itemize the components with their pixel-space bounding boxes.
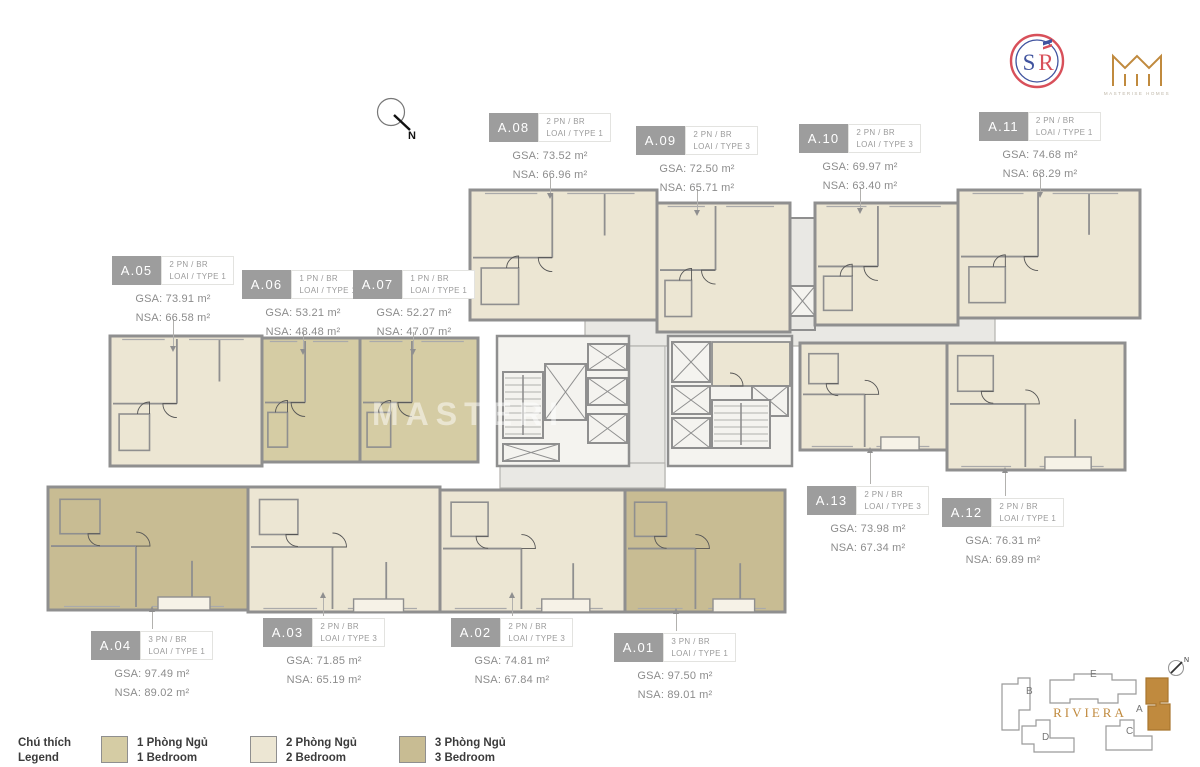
- unit-label-a07[interactable]: A.07 1 PN / BR LOAI / TYPE 1 GSA: 52.27 …: [329, 270, 499, 340]
- sr-logo: S R: [1011, 35, 1063, 87]
- unit-gsa: GSA: 52.27 m²: [376, 307, 451, 320]
- unit-id-badge[interactable]: A.02: [451, 618, 501, 647]
- unit-label-a10[interactable]: A.10 2 PN / BR LOAI / TYPE 3 GSA: 69.97 …: [775, 124, 945, 194]
- unit-nsa: NSA: 89.02 m²: [115, 687, 190, 700]
- unit-shape-a10[interactable]: [815, 203, 958, 325]
- unit-nsa: NSA: 67.84 m²: [475, 674, 550, 687]
- leader-line-a04: [152, 611, 153, 629]
- unit-nsa: NSA: 47.07 m²: [377, 326, 452, 339]
- unit-label-a01[interactable]: A.01 3 PN / BR LOAI / TYPE 1 GSA: 97.50 …: [590, 633, 760, 703]
- unit-id-badge[interactable]: A.11: [979, 112, 1028, 141]
- unit-label-a09[interactable]: A.09 2 PN / BR LOAI / TYPE 3 GSA: 72.50 …: [612, 126, 782, 196]
- unit-nsa: NSA: 68.29 m²: [1003, 168, 1078, 181]
- unit-shape-a02[interactable]: [440, 490, 625, 612]
- balcony: [354, 599, 404, 612]
- elevator-shaft: [672, 386, 710, 414]
- unit-gsa: GSA: 71.85 m²: [286, 655, 361, 668]
- svg-text:R: R: [1038, 50, 1054, 75]
- svg-text:N: N: [1184, 657, 1189, 664]
- svg-text:E: E: [1090, 669, 1097, 680]
- legend-swatch-1br: [101, 736, 128, 763]
- unit-nsa: NSA: 89.01 m²: [638, 689, 713, 702]
- unit-id-badge[interactable]: A.04: [91, 631, 141, 660]
- unit-label-a04[interactable]: A.04 3 PN / BR LOAI / TYPE 1 GSA: 97.49 …: [67, 631, 237, 701]
- legend: Chú thích Legend 1 Phòng Ngủ 1 Bedroom 2…: [18, 736, 548, 766]
- unit-shape-a09[interactable]: [657, 203, 790, 332]
- unit-label-a08[interactable]: A.08 2 PN / BR LOAI / TYPE 1 GSA: 73.52 …: [465, 113, 635, 183]
- leader-line-a12: [1005, 472, 1006, 496]
- svg-text:A: A: [1136, 704, 1143, 715]
- unit-nsa: NSA: 67.34 m²: [831, 542, 906, 555]
- leader-line-a03: [323, 597, 324, 616]
- legend-swatch-2br: [250, 736, 277, 763]
- elevator-shaft: [672, 418, 710, 448]
- minimap-project-name: RIVIERA: [1053, 705, 1127, 720]
- unit-type-box: 3 PN / BR LOAI / TYPE 1: [663, 633, 736, 662]
- unit-nsa: NSA: 66.58 m²: [136, 312, 211, 325]
- unit-shape-a13[interactable]: [800, 343, 947, 450]
- svg-text:S: S: [1023, 50, 1036, 75]
- staircase: [712, 400, 770, 448]
- watermark-text: MASTERI: [372, 396, 565, 432]
- unit-nsa: NSA: 65.71 m²: [660, 182, 735, 195]
- balcony: [542, 599, 590, 612]
- unit-gsa: GSA: 97.49 m²: [114, 668, 189, 681]
- legend-item-2br: 2 Phòng Ngủ 2 Bedroom: [250, 736, 357, 766]
- minimap: B E A D C RIVIERA N: [1002, 657, 1189, 752]
- unit-shape-a04[interactable]: [48, 487, 248, 610]
- unit-id-badge[interactable]: A.10: [799, 124, 849, 153]
- unit-gsa: GSA: 72.50 m²: [659, 163, 734, 176]
- elevator-shaft: [588, 414, 627, 443]
- unit-gsa: GSA: 74.81 m²: [474, 655, 549, 668]
- unit-type-box: 2 PN / BR LOAI / TYPE 3: [848, 124, 921, 153]
- legend-item-1br: 1 Phòng Ngủ 1 Bedroom: [101, 736, 208, 766]
- unit-gsa: GSA: 76.31 m²: [965, 535, 1040, 548]
- unit-label-a02[interactable]: A.02 2 PN / BR LOAI / TYPE 3 GSA: 74.81 …: [427, 618, 597, 688]
- unit-gsa: GSA: 69.97 m²: [822, 161, 897, 174]
- unit-type-box: 2 PN / BR LOAI / TYPE 3: [500, 618, 573, 647]
- unit-shape-a01[interactable]: [625, 490, 785, 612]
- unit-type-box: 2 PN / BR LOAI / TYPE 1: [1028, 112, 1101, 141]
- unit-gsa: GSA: 73.52 m²: [512, 150, 587, 163]
- unit-type-box: 2 PN / BR LOAI / TYPE 3: [312, 618, 385, 647]
- balcony: [713, 599, 755, 612]
- unit-gsa: GSA: 74.68 m²: [1002, 149, 1077, 162]
- unit-shape-a12[interactable]: [947, 343, 1125, 470]
- unit-gsa: GSA: 97.50 m²: [637, 670, 712, 683]
- unit-id-badge[interactable]: A.07: [353, 270, 403, 299]
- balcony: [1045, 457, 1091, 470]
- unit-type-box: 2 PN / BR LOAI / TYPE 1: [538, 113, 611, 142]
- legend-swatch-3br: [399, 736, 426, 763]
- unit-id-badge[interactable]: A.09: [636, 126, 686, 155]
- unit-label-a03[interactable]: A.03 2 PN / BR LOAI / TYPE 3 GSA: 71.85 …: [239, 618, 409, 688]
- unit-gsa: GSA: 73.98 m²: [830, 523, 905, 536]
- svg-text:D: D: [1042, 732, 1049, 743]
- unit-id-badge[interactable]: A.05: [112, 256, 162, 285]
- unit-id-badge[interactable]: A.03: [263, 618, 313, 647]
- elevator-shaft: [790, 286, 815, 316]
- leader-line-a01: [676, 613, 677, 631]
- svg-text:B: B: [1026, 686, 1033, 697]
- north-compass: N: [378, 99, 417, 143]
- unit-id-badge[interactable]: A.08: [489, 113, 539, 142]
- svg-text:C: C: [1126, 726, 1133, 737]
- leader-line-a02: [512, 597, 513, 616]
- unit-id-badge[interactable]: A.06: [242, 270, 292, 299]
- unit-nsa: NSA: 63.40 m²: [823, 180, 898, 193]
- minimap-building-a-highlighted[interactable]: [1146, 678, 1170, 730]
- masterise-logo: MASTERISE HOMES: [1104, 56, 1170, 96]
- balcony: [158, 597, 210, 610]
- legend-title: Chú thích Legend: [18, 736, 71, 766]
- unit-shape-a11[interactable]: [958, 190, 1140, 318]
- leader-line-a13: [870, 452, 871, 484]
- unit-gsa: GSA: 73.91 m²: [135, 293, 210, 306]
- unit-label-a12[interactable]: A.12 2 PN / BR LOAI / TYPE 1 GSA: 76.31 …: [918, 498, 1088, 568]
- svg-text:MASTERISE HOMES: MASTERISE HOMES: [1104, 91, 1170, 96]
- unit-nsa: NSA: 69.89 m²: [966, 554, 1041, 567]
- unit-id-badge[interactable]: A.13: [807, 486, 857, 515]
- legend-item-3br: 3 Phòng Ngủ 3 Bedroom: [399, 736, 506, 766]
- unit-type-box: 2 PN / BR LOAI / TYPE 1: [991, 498, 1064, 527]
- unit-type-box: 2 PN / BR LOAI / TYPE 3: [685, 126, 758, 155]
- unit-type-box: 1 PN / BR LOAI / TYPE 1: [402, 270, 475, 299]
- unit-id-badge[interactable]: A.01: [614, 633, 664, 662]
- svg-text:N: N: [408, 130, 416, 142]
- elevator-shaft: [588, 378, 627, 405]
- unit-shape-a06[interactable]: [262, 338, 360, 462]
- unit-shape-a03[interactable]: [248, 487, 440, 612]
- balcony: [881, 437, 919, 450]
- unit-label-a11[interactable]: A.11 2 PN / BR LOAI / TYPE 1 GSA: 74.68 …: [955, 112, 1125, 182]
- unit-shape-a05[interactable]: [110, 336, 262, 466]
- unit-nsa: NSA: 65.19 m²: [287, 674, 362, 687]
- unit-id-badge[interactable]: A.12: [942, 498, 992, 527]
- floor-plan-page: MASTERI N S R MASTERISE HOMES B E A D C …: [0, 0, 1200, 767]
- elevator-shaft: [503, 444, 559, 461]
- elevator-shaft: [588, 344, 627, 370]
- elevator-shaft: [672, 342, 710, 382]
- minimap-compass: N: [1169, 657, 1190, 676]
- unit-type-box: 3 PN / BR LOAI / TYPE 1: [140, 631, 213, 660]
- unit-nsa: NSA: 66.96 m²: [513, 169, 588, 182]
